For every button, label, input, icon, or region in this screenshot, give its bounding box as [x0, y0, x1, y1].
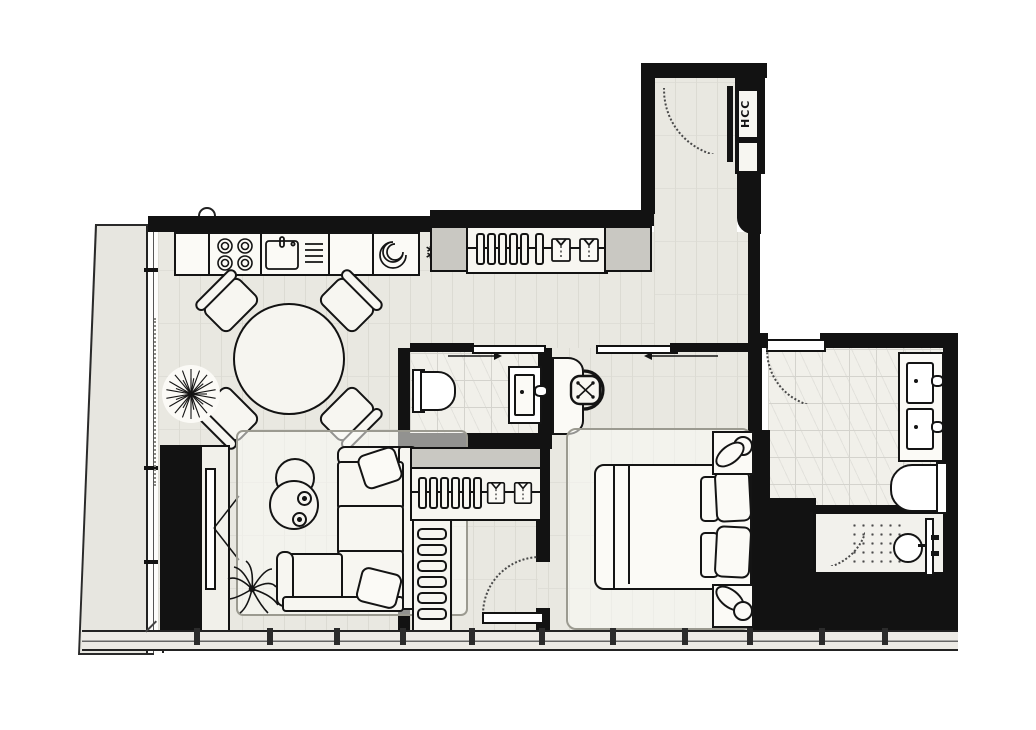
closet-door-leaf: [482, 612, 544, 624]
wc-faucet-icon: [534, 385, 548, 397]
shirt-icon: [484, 478, 508, 508]
rolled-item-icon: [417, 544, 447, 556]
shaft-left: [430, 226, 470, 272]
bath-toilet-bowl: [890, 464, 942, 512]
sliding-door-arrow-left: [642, 350, 720, 362]
hanger-icon: [473, 477, 482, 509]
shower-door-swing-arc: [813, 514, 865, 566]
counter-divider: [260, 234, 262, 274]
shirt-icon: [511, 478, 535, 508]
rolled-item-icon: [417, 528, 447, 540]
wc-sink-basin: [514, 374, 535, 416]
wall-bath-top-b: [820, 333, 958, 348]
bath-toilet-tank: [936, 462, 948, 514]
shower-rail: [925, 518, 934, 576]
wall-closet-top: [430, 210, 654, 226]
window-mullion: [682, 628, 688, 645]
wall-bath-left-mass2: [748, 498, 816, 572]
dining-table: [233, 303, 345, 415]
wall-bath-top-a: [748, 333, 768, 348]
hanger-icon: [462, 477, 471, 509]
bed-pillow-large: [714, 469, 753, 523]
closet-door-swing-arc: [482, 556, 538, 612]
sink-drain-dot: [914, 425, 918, 429]
hanger-icon: [509, 233, 518, 265]
window-mullion: [747, 628, 753, 645]
entry-door-swing-arc: [663, 88, 729, 154]
riser-niche-hcc: HCC: [738, 90, 758, 138]
window-mullion: [610, 628, 616, 645]
wall-corridor-left: [641, 78, 655, 214]
counter-divider: [328, 234, 330, 274]
table-lamp-icon: [733, 601, 753, 621]
hanger-icon: [451, 477, 460, 509]
window-mullion: [400, 628, 406, 645]
vanity-sink-icon: [906, 362, 934, 404]
window-mullion: [882, 628, 888, 645]
window-mullion: [819, 628, 825, 645]
riser-niche-2: [738, 142, 758, 172]
closet-rail-section: [410, 467, 542, 521]
sink-drain-dot: [914, 379, 918, 383]
window-mullion: [334, 628, 340, 645]
window-band: [82, 630, 958, 651]
shower-head-icon: [893, 533, 923, 563]
cup-icon: [292, 512, 307, 527]
shaft-right: [604, 226, 652, 272]
hanger-icon: [429, 477, 438, 509]
plant-spiky-icon: [220, 555, 284, 619]
window-mullion: [267, 628, 273, 645]
toilet-bowl: [420, 371, 456, 411]
plant-starburst-icon: [162, 365, 220, 423]
sliding-door-arrow-right: [446, 350, 504, 362]
floor-plan: HCC: [0, 0, 1036, 730]
faucet-icon: [931, 421, 944, 433]
washing-machine-icon: [377, 237, 413, 271]
wall-corridor-top: [641, 63, 767, 78]
shirt-icon: [548, 234, 574, 266]
faucet-icon: [931, 375, 944, 387]
wc-sink-drain: [520, 390, 524, 394]
hanger-icon: [498, 233, 507, 265]
wall-bath-bottom-mass: [750, 572, 958, 632]
tv-media-wall: [160, 445, 200, 641]
wall-corridor-right-lower: [748, 232, 760, 348]
rolled-item-icon: [417, 608, 447, 620]
shower-knob: [931, 535, 939, 540]
shirt-icon: [576, 234, 602, 266]
counter-divider: [372, 234, 374, 274]
kitchen-counter: ❄: [174, 232, 420, 276]
riser-label: HCC: [739, 91, 757, 137]
vanity-sink-icon: [906, 408, 934, 450]
hall-closet: [466, 226, 608, 274]
hanger-icon: [418, 477, 427, 509]
wall-bath-right: [943, 345, 958, 575]
hanger-icon: [440, 477, 449, 509]
wall-bedroom-right: [748, 348, 762, 430]
bath-vanity: [898, 352, 944, 462]
sofa-seat: [337, 505, 404, 555]
bed-fold-line: [628, 466, 630, 584]
rolled-item-icon: [417, 576, 447, 588]
kitchen-sink-icon: [263, 236, 327, 272]
desk-chair-icon: [566, 366, 614, 414]
window-mullion: [469, 628, 475, 645]
bathroom-door-swing-arc: [766, 348, 822, 404]
closet-shelf-unit: [412, 519, 452, 633]
hanger-icon: [520, 233, 529, 265]
plant-round: [162, 365, 220, 423]
cooktop-icon: [210, 236, 260, 272]
balcony-floor: [78, 224, 154, 655]
rolled-item-icon: [417, 560, 447, 572]
bed-duvet-fold: [594, 464, 615, 590]
wall-corridor-right-curve: [737, 174, 761, 234]
window-mullion: [194, 628, 200, 645]
rolled-item-icon: [417, 592, 447, 604]
hanger-icon: [487, 233, 496, 265]
window-mullion: [539, 628, 545, 645]
hanger-icon: [476, 233, 485, 265]
bed-pillow-large: [714, 525, 753, 579]
cup-icon: [297, 491, 312, 506]
hanger-icon: [535, 233, 544, 265]
shower-knob: [931, 551, 939, 556]
wall-kitchen-top: [148, 216, 430, 232]
